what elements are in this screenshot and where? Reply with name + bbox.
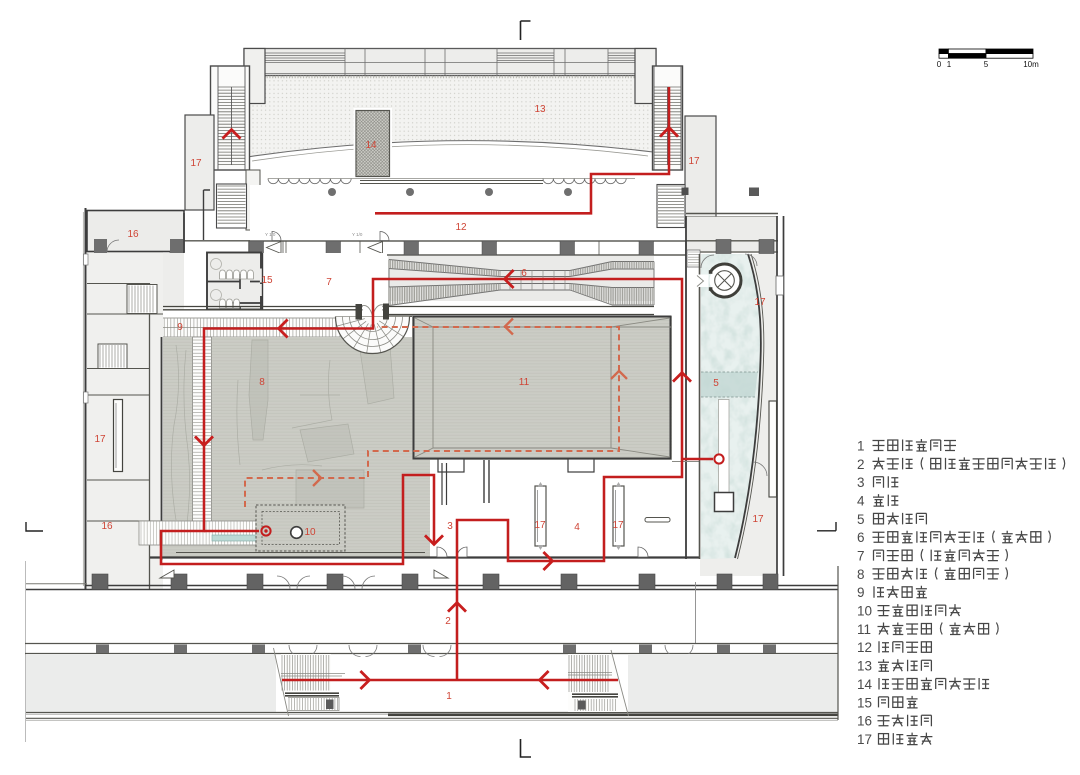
svg-text:1: 1 [857,438,865,453]
svg-text:17: 17 [94,434,106,445]
svg-text:1: 1 [947,60,952,69]
svg-text:14: 14 [857,677,873,692]
svg-text:11: 11 [857,622,871,637]
svg-text:5: 5 [984,60,989,69]
svg-text:17: 17 [857,732,872,747]
svg-text:4: 4 [574,522,580,533]
svg-text:9: 9 [177,322,183,333]
svg-text:16: 16 [127,229,139,240]
svg-text:11: 11 [519,377,530,388]
svg-text:5: 5 [857,512,865,527]
svg-text:3: 3 [447,521,453,532]
svg-text:3: 3 [857,475,865,490]
svg-text:0: 0 [937,60,942,69]
svg-text:6: 6 [857,530,865,545]
svg-text:17: 17 [752,514,764,525]
svg-text:17: 17 [190,158,202,169]
svg-text:9: 9 [857,585,865,600]
svg-text:17: 17 [754,297,766,308]
svg-text:13: 13 [857,659,872,674]
svg-text:10: 10 [304,527,316,538]
svg-text:15: 15 [261,275,273,286]
svg-text:7: 7 [857,549,865,564]
svg-text:17: 17 [688,156,700,167]
svg-text:7: 7 [326,277,332,288]
svg-text:16: 16 [857,714,872,729]
svg-text:2: 2 [857,457,865,472]
svg-text:8: 8 [857,567,865,582]
svg-text:1: 1 [446,691,452,702]
svg-text:12: 12 [857,640,872,655]
svg-text:15: 15 [857,695,872,710]
svg-text:17: 17 [612,520,624,531]
svg-text:14: 14 [365,140,377,151]
svg-text:2: 2 [445,616,451,627]
svg-text:13: 13 [534,104,546,115]
svg-text:Y 1/0: Y 1/0 [352,232,363,237]
svg-text:8: 8 [259,377,265,388]
svg-text:Y 1/0: Y 1/0 [265,232,276,237]
svg-text:4: 4 [857,493,865,508]
svg-text:17: 17 [534,520,546,531]
svg-text:16: 16 [101,521,113,532]
svg-text:10: 10 [857,604,872,619]
svg-text:10m: 10m [1023,60,1039,69]
svg-text:6: 6 [521,268,527,279]
svg-text:12: 12 [455,222,467,233]
svg-text:5: 5 [713,378,719,389]
